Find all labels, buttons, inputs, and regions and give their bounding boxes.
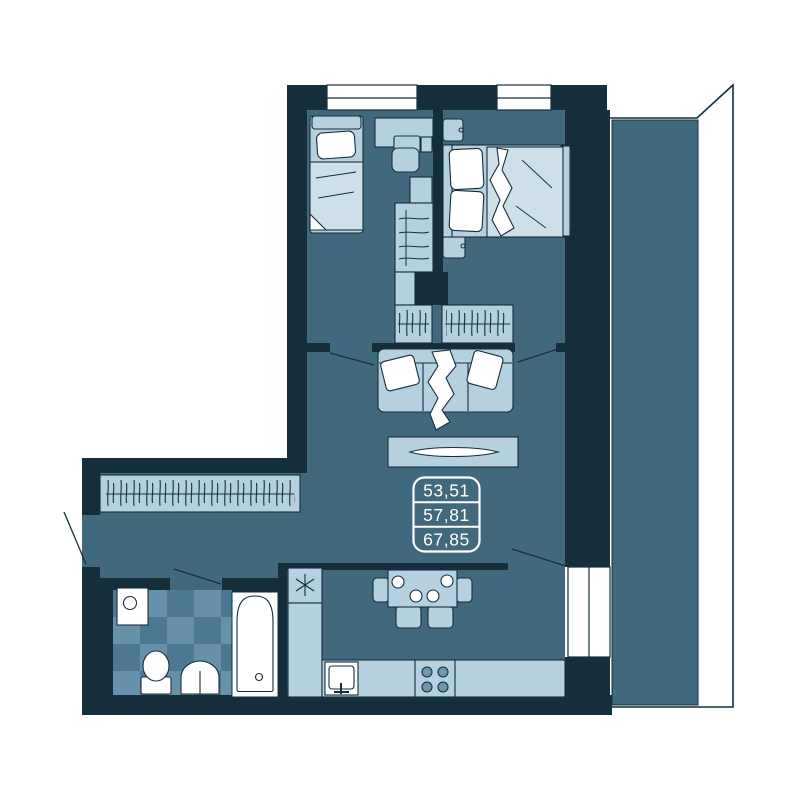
area-value-with-terrace: 67,85 bbox=[423, 530, 470, 550]
bedroom-wardrobes bbox=[395, 305, 513, 343]
fridge bbox=[288, 568, 322, 603]
wall-kitchen-left bbox=[278, 563, 287, 697]
pillow-1 bbox=[449, 148, 484, 190]
counter-left bbox=[288, 603, 322, 697]
chair-right bbox=[456, 578, 472, 602]
bathroom-door-gap bbox=[170, 578, 222, 590]
plate bbox=[427, 590, 439, 602]
terrace-floor bbox=[612, 120, 698, 705]
wall-bed1-door-stub bbox=[307, 343, 330, 352]
plate bbox=[410, 590, 422, 602]
wall-bedroom-partition bbox=[433, 110, 443, 272]
wall-bedroom-left bbox=[287, 110, 307, 473]
wall-bottom bbox=[82, 695, 612, 715]
wall-bathroom-left bbox=[82, 578, 113, 715]
area-value-total: 57,81 bbox=[423, 505, 470, 525]
pillow bbox=[316, 131, 356, 160]
pillow-2 bbox=[449, 190, 484, 232]
area-value-living: 53,51 bbox=[423, 481, 470, 501]
floor-plan-screenshot: 53,51 57,81 67,85 bbox=[0, 0, 800, 800]
chair-bottom-1 bbox=[396, 606, 421, 628]
chair-left bbox=[373, 578, 389, 602]
single-bed bbox=[310, 116, 363, 233]
wall-closet-chunk bbox=[415, 272, 448, 305]
wall-bathroom-top-stub bbox=[222, 578, 232, 590]
plate bbox=[392, 576, 404, 588]
kitchen-sink bbox=[325, 662, 358, 695]
desk-chair bbox=[392, 148, 419, 172]
chair-bottom-2 bbox=[428, 606, 453, 628]
dresser bbox=[395, 203, 433, 272]
closet-side bbox=[395, 272, 415, 305]
entrance-door-gap bbox=[82, 515, 100, 567]
hallway bbox=[100, 475, 300, 512]
wall-left-upper bbox=[82, 473, 100, 515]
floor-plan-canvas: 53,51 57,81 67,85 bbox=[0, 0, 800, 800]
wall-hallway-top bbox=[82, 458, 307, 473]
wall-right-upper bbox=[565, 110, 610, 567]
drain bbox=[256, 674, 263, 681]
plate bbox=[441, 575, 453, 587]
bathtub bbox=[232, 592, 278, 697]
tv-console bbox=[388, 437, 518, 467]
bathroom bbox=[113, 588, 278, 697]
living-room bbox=[378, 349, 518, 467]
terrace-door bbox=[568, 567, 610, 657]
toilet bbox=[141, 651, 171, 694]
tv-icon bbox=[410, 448, 498, 457]
sink bbox=[181, 661, 219, 694]
washing-machine bbox=[117, 588, 148, 625]
area-box: 53,51 57,81 67,85 bbox=[414, 478, 480, 552]
double-bed bbox=[443, 145, 570, 237]
wall-left-mid bbox=[82, 567, 100, 578]
desk-item bbox=[421, 137, 432, 152]
